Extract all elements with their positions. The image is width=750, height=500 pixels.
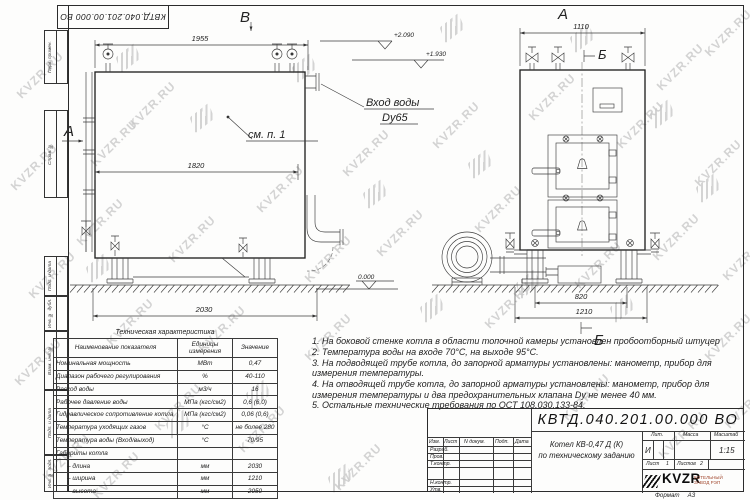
sidebox-label: Инв. № дубл. — [45, 297, 56, 330]
spec-cell-units: °С — [178, 421, 233, 434]
sign-utv: Утв. — [430, 487, 442, 493]
spec-cell-name: Расход воды — [54, 383, 178, 396]
title-block-code: КВТД.040.201.00.000 ВО — [531, 409, 745, 431]
company-line2: ЗАВОД РЭП — [694, 480, 723, 485]
scale-label: Масштаб — [714, 432, 738, 438]
spec-cell-value: 40-110 — [233, 370, 278, 383]
kvzr-logo-icon — [642, 475, 660, 488]
spec-cell-value: 70/95 — [233, 434, 278, 447]
sidebox-label: Справ. № — [45, 111, 56, 197]
sheets-value: 2 — [700, 461, 703, 467]
spec-cell-units: мм — [178, 473, 233, 486]
sign-nkontr: Н.контр. — [430, 480, 452, 486]
note-line: 2. Температура воды на входе 70°С, на вы… — [312, 347, 746, 357]
spec-cell-value — [233, 447, 278, 460]
format-note: ФорматА3 — [655, 492, 703, 499]
spec-cell-name: Температура воды (Вход/выход) — [54, 434, 178, 447]
spec-row: – длина мм 2030 — [54, 460, 278, 473]
spec-cell-name: Диапазон рабочего регулирования — [54, 370, 178, 383]
col-ndoc: N докум. — [464, 439, 485, 445]
spec-cell-name: Номинальная мощность — [54, 358, 178, 371]
technical-notes: 1. На боковой стенке котла в области топ… — [312, 336, 746, 411]
format-label: Формат — [655, 492, 680, 499]
drawing-sheet: KVZR.RUKVZR.RUKVZR.RUKVZR.RUKVZR.RUKVZR.… — [0, 0, 750, 500]
spec-row: Рабочее давление воды МПа (кгс/см2) 0,6 … — [54, 396, 278, 409]
mass-label: Масса — [683, 432, 698, 438]
sidebox-sprav: Справ. № — [44, 110, 68, 198]
col-podp: Подп. — [495, 439, 509, 445]
spec-cell-value: 2030 — [233, 460, 278, 473]
sidebox-label: Перв. примен. — [45, 31, 56, 83]
spec-header-units: Единицы измерения — [178, 339, 233, 358]
note-line: 1. На боковой стенке котла в области топ… — [312, 336, 746, 346]
corner-stamp-code: КВТД.040.201.00.000 ВО — [60, 12, 166, 22]
sheet-value: 1 — [666, 461, 669, 467]
spec-cell-value: 0,06 (0,6) — [233, 409, 278, 422]
spec-row: Номинальная мощность МВт 0,47 — [54, 358, 278, 371]
product-name-line2: по техническому заданию — [531, 451, 642, 462]
spec-cell-units: °С — [178, 434, 233, 447]
spec-cell-value: 2050 — [233, 485, 278, 498]
spec-header-name: Наименование показателя — [54, 339, 178, 358]
sheets-label: Листов — [677, 461, 696, 467]
spec-cell-units: МПа (кгс/см2) — [178, 409, 233, 422]
spec-cell-units: МВт — [178, 358, 233, 371]
company-name: КОТЕЛЬНЫЙ ЗАВОД РЭП — [694, 475, 723, 485]
spec-cell-value: не более 280 — [233, 421, 278, 434]
spec-cell-name: Габариты котла — [54, 447, 178, 460]
note-line: 3. На подводящей трубе котла, до запорно… — [312, 358, 746, 379]
sidebox-perv-primen: Перв. примен. — [44, 30, 68, 84]
spec-header-value: Значение — [233, 339, 278, 358]
sign-prov: Пров. — [430, 454, 444, 460]
scale-value: 1:15 — [719, 446, 735, 455]
spec-cell-name: Гидравлическое сопротивление котла — [54, 409, 178, 422]
spec-cell-value: 0,6 (6,0) — [233, 396, 278, 409]
spec-cell-units: мм — [178, 485, 233, 498]
col-list: Лист — [444, 439, 457, 445]
spec-cell-units: м3/ч — [178, 383, 233, 396]
spec-row: Температура уходящих газов °С не более 2… — [54, 421, 278, 434]
spec-cell-value: 1210 — [233, 473, 278, 486]
sheet-label: Лист — [646, 461, 659, 467]
format-value: А3 — [688, 492, 696, 499]
product-name: Котел КВ-0,47 Д (К) по техническому зада… — [531, 431, 642, 493]
spec-cell-name: – ширина — [54, 473, 178, 486]
spec-row: Диапазон рабочего регулирования % 40-110 — [54, 370, 278, 383]
note-line: 4. На отводящей трубе котла, до запорной… — [312, 379, 746, 400]
spec-cell-name: – высота — [54, 485, 178, 498]
product-name-line1: Котел КВ-0,47 Д (К) — [531, 440, 642, 451]
sign-razrab: Разраб. — [430, 447, 449, 453]
lit-value: И — [645, 446, 651, 455]
title-block: КВТД.040.201.00.000 ВО Изм. Лист N докум… — [427, 408, 744, 492]
spec-table-title: Техническая характеристика — [53, 329, 277, 336]
spec-row: Габариты котла — [54, 447, 278, 460]
spec-table-block: Техническая характеристика Наименование … — [53, 329, 277, 499]
spec-table: Наименование показателя Единицы измерени… — [53, 338, 278, 499]
col-data: Дата — [515, 439, 529, 445]
sidebox-podp-data-1: Подп. и дата — [44, 256, 68, 296]
spec-header-row: Наименование показателя Единицы измерени… — [54, 339, 278, 358]
lit-label: Лит. — [651, 432, 663, 438]
spec-cell-units: МПа (кгс/см2) — [178, 396, 233, 409]
spec-row: – ширина мм 1210 — [54, 473, 278, 486]
spec-cell-name: – длина — [54, 460, 178, 473]
spec-cell-name: Рабочее давление воды — [54, 396, 178, 409]
sidebox-inv-dubl: Инв. № дубл. — [44, 296, 68, 331]
spec-row: Гидравлическое сопротивление котла МПа (… — [54, 409, 278, 422]
spec-row: Расход воды м3/ч 16 — [54, 383, 278, 396]
spec-row: – высота мм 2050 — [54, 485, 278, 498]
spec-cell-value: 0,47 — [233, 358, 278, 371]
spec-cell-units: мм — [178, 460, 233, 473]
spec-cell-name: Температура уходящих газов — [54, 421, 178, 434]
corner-stamp: КВТД.040.201.00.000 ВО — [57, 5, 169, 29]
spec-row: Температура воды (Вход/выход) °С 70/95 — [54, 434, 278, 447]
col-izm: Изм. — [429, 439, 440, 445]
spec-cell-value: 16 — [233, 383, 278, 396]
sidebox-label: Подп. и дата — [45, 257, 56, 295]
spec-cell-units — [178, 447, 233, 460]
sign-tkontr: Т.контр. — [430, 461, 451, 467]
spec-cell-units: % — [178, 370, 233, 383]
